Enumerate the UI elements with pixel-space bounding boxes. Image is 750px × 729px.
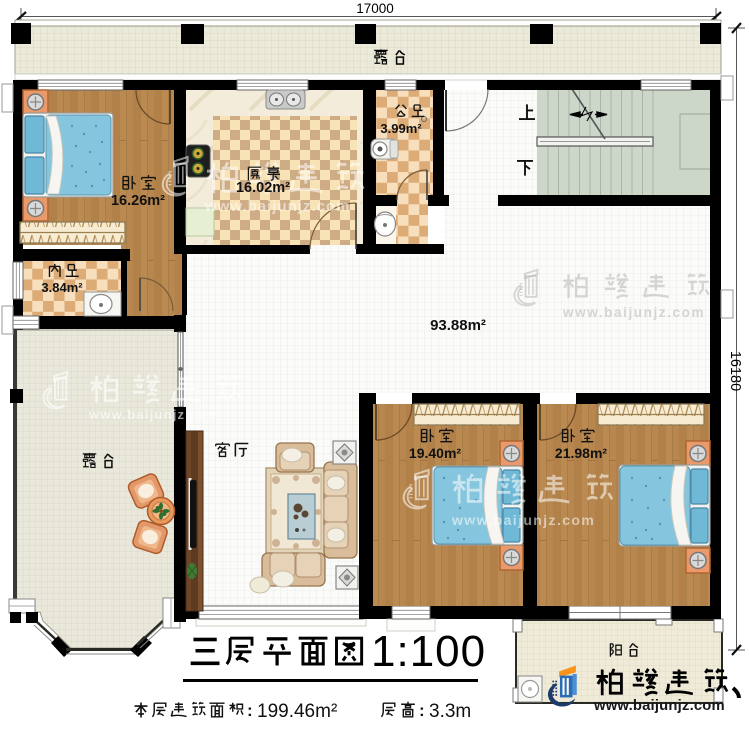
svg-text:3.3m: 3.3m xyxy=(429,701,471,722)
svg-text:17000: 17000 xyxy=(356,1,394,16)
svg-text:3.84m²: 3.84m² xyxy=(41,280,83,295)
svg-text:93.88m²: 93.88m² xyxy=(430,317,486,334)
svg-text:16180: 16180 xyxy=(727,351,743,391)
svg-text:16.26m²: 16.26m² xyxy=(111,193,165,209)
svg-text:21.98m²: 21.98m² xyxy=(555,445,607,461)
svg-text:16.02m²: 16.02m² xyxy=(236,180,290,196)
svg-text:19.40m²: 19.40m² xyxy=(409,445,461,461)
svg-text::: : xyxy=(419,701,425,720)
svg-text:www.baijunjz.com: www.baijunjz.com xyxy=(593,698,725,714)
svg-text:1:100: 1:100 xyxy=(371,627,486,676)
svg-text:www.baijunjz.com: www.baijunjz.com xyxy=(88,407,220,422)
svg-text:3.99m²: 3.99m² xyxy=(380,121,422,136)
svg-text:www.baijunjz.com: www.baijunjz.com xyxy=(562,305,705,320)
svg-text::: : xyxy=(247,701,253,720)
svg-text:www.baijunjz.com: www.baijunjz.com xyxy=(204,198,350,215)
svg-text:www.baijunjz.com: www.baijunjz.com xyxy=(451,512,595,528)
svg-text:199.46m²: 199.46m² xyxy=(257,701,337,722)
